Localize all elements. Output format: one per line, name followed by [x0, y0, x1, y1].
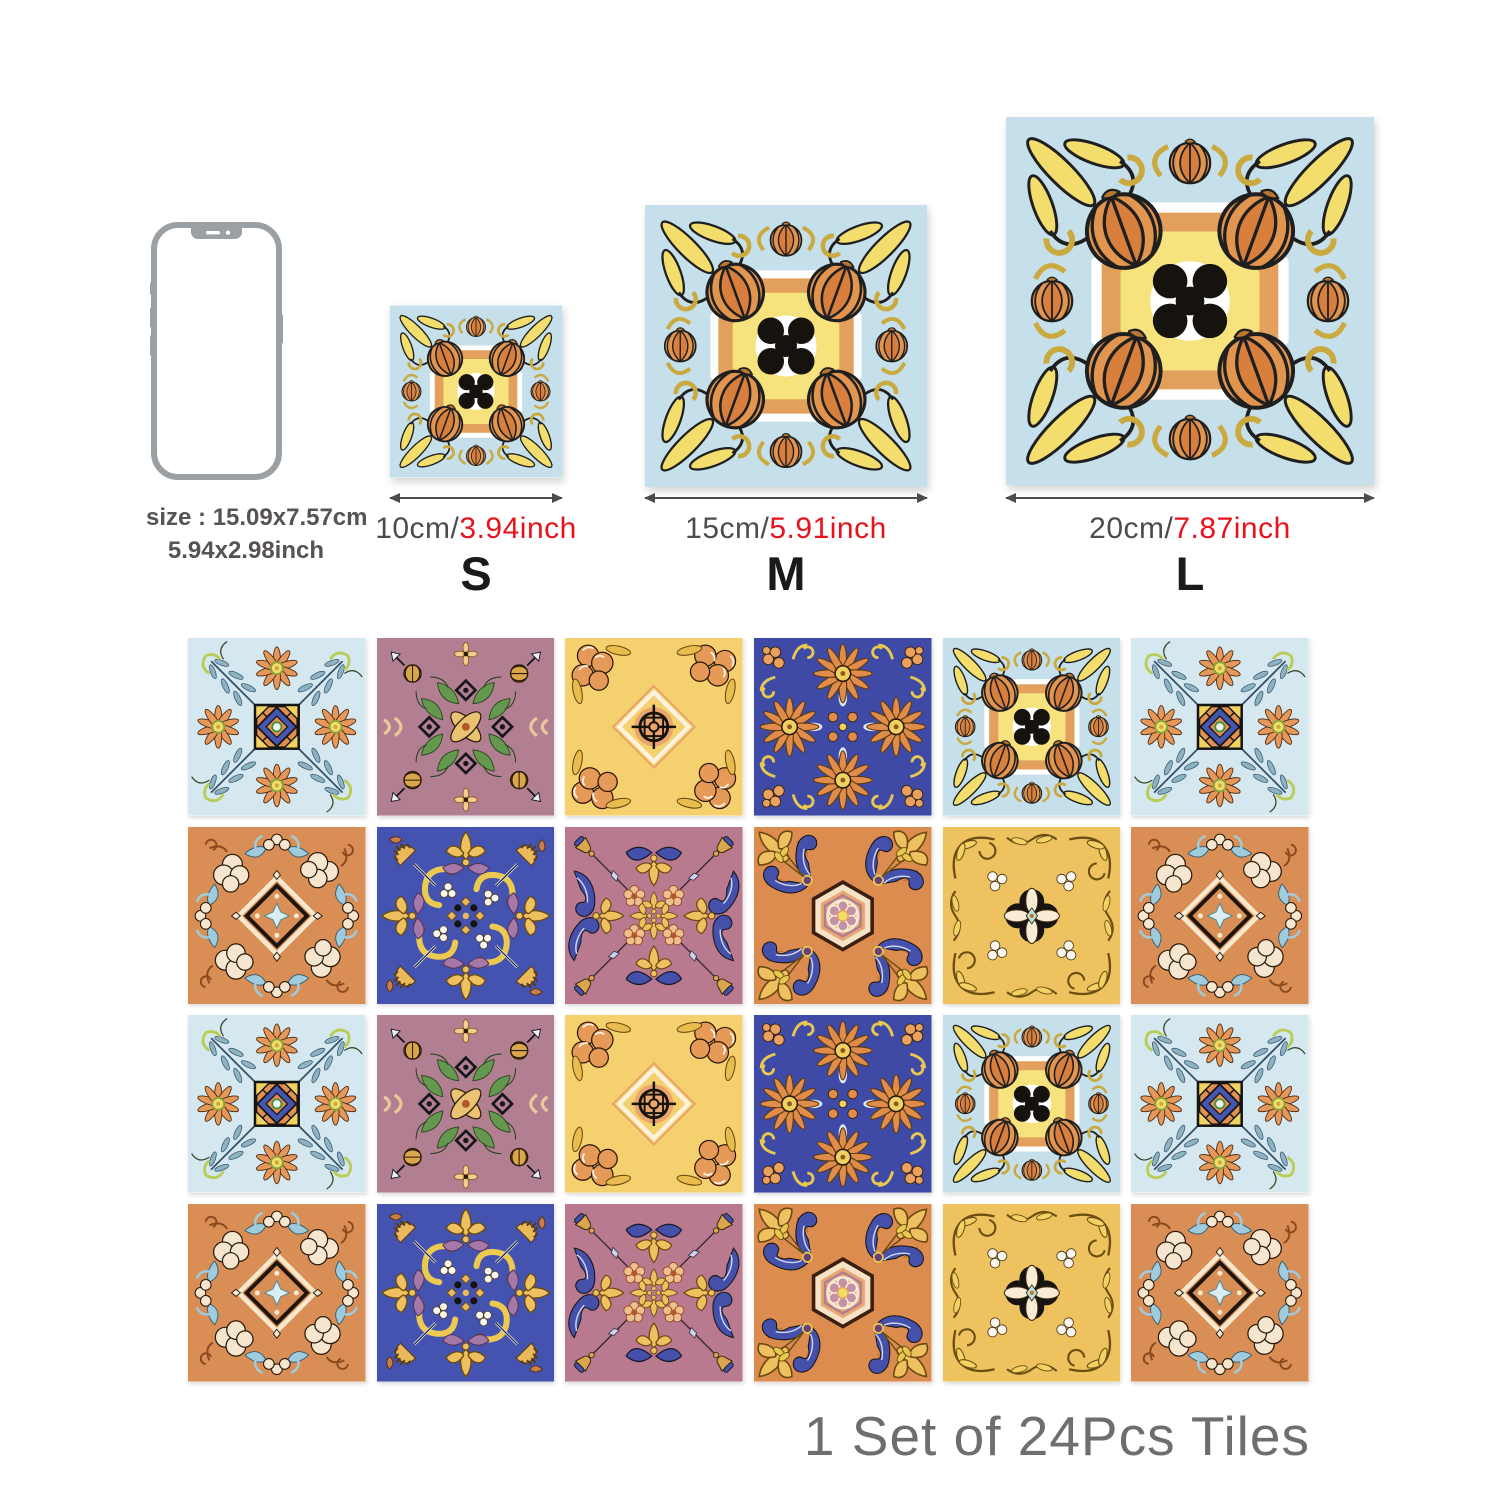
tile-set-grid: [188, 638, 1309, 1382]
tile-light-blue-daisy-square: [188, 638, 366, 816]
tile-art: [943, 638, 1121, 816]
tile-mauve-blue-paisley: [565, 1204, 743, 1382]
tile-art: [754, 1204, 932, 1382]
tile-terracotta-cream-diamond: [1131, 1204, 1309, 1382]
tile-art: [943, 1204, 1121, 1382]
tile-terracotta-hexagon-rosette: [754, 827, 932, 1005]
dimension-label-medium: 15cm/5.91inch: [645, 512, 927, 546]
tile-gold-peony-compass: [565, 638, 743, 816]
tile-art: [754, 638, 932, 816]
tile-art: [754, 1015, 932, 1193]
tile-mauve-gold-knot: [377, 1015, 555, 1193]
tile-mauve-blue-paisley: [565, 827, 743, 1005]
tile-light-blue-pumpkin-medallion: [943, 1015, 1121, 1193]
tile-art: [1131, 1204, 1309, 1382]
tile-terracotta-cream-diamond: [188, 1204, 366, 1382]
tile-art: [565, 1204, 743, 1382]
dimension-cm: 10cm/: [375, 512, 459, 546]
dimension-cm: 15cm/: [685, 512, 769, 546]
phone-size-label-cm: size : 15.09x7.57cm: [146, 504, 324, 532]
tile-gold-quatrefoil-vine: [943, 827, 1121, 1005]
dimension-inch: 7.87inch: [1173, 512, 1290, 546]
width-arrow-medium: [645, 497, 927, 499]
set-count-caption: 1 Set of 24Pcs Tiles: [804, 1404, 1310, 1468]
tile-light-blue-daisy-square: [188, 1015, 366, 1193]
tile-gold-peony-compass: [565, 1015, 743, 1193]
tile-art: [377, 1204, 555, 1382]
tile-light-blue-pumpkin-medallion: [943, 638, 1121, 816]
tile-art: [188, 638, 366, 816]
product-image: size : 15.09x7.57cm 5.94x2.98inch 10cm/3…: [0, 0, 1500, 1500]
tile-art: [943, 1015, 1121, 1193]
display-tile-small: [390, 305, 562, 478]
phone-outline-graphic: [150, 222, 283, 480]
tile-art: [565, 638, 743, 816]
tile-art: [377, 638, 555, 816]
tile-art: [645, 205, 927, 487]
tile-mauve-gold-knot: [377, 638, 555, 816]
tile-art: [377, 827, 555, 1005]
tile-art: [377, 1015, 555, 1193]
tile-art: [390, 305, 562, 478]
tile-royal-blue-sunflower: [754, 1015, 932, 1193]
tile-light-blue-daisy-square: [1131, 1015, 1309, 1193]
width-arrow-large: [1006, 497, 1374, 499]
tile-royal-blue-gold-scroll: [377, 827, 555, 1005]
tile-terracotta-cream-diamond: [1131, 827, 1309, 1005]
tile-art: [565, 1015, 743, 1193]
tile-art: [1131, 1015, 1309, 1193]
display-tile-large: [1006, 117, 1374, 485]
dimension-label-small: 10cm/3.94inch: [390, 512, 562, 546]
width-arrow-small: [390, 497, 562, 499]
display-tile-medium: [645, 205, 927, 487]
tile-art: [943, 827, 1121, 1005]
tile-art: [754, 827, 932, 1005]
size-letter-s: S: [390, 546, 562, 601]
tile-art: [1131, 827, 1309, 1005]
tile-art: [1006, 117, 1374, 485]
tile-art: [1131, 638, 1309, 816]
tile-terracotta-hexagon-rosette: [754, 1204, 932, 1382]
tile-light-blue-daisy-square: [1131, 638, 1309, 816]
tile-art: [188, 827, 366, 1005]
phone-size-label-inch: 5.94x2.98inch: [146, 537, 324, 565]
tile-art: [188, 1204, 366, 1382]
tile-gold-quatrefoil-vine: [943, 1204, 1121, 1382]
dimension-inch: 5.91inch: [769, 512, 886, 546]
dimension-cm: 20cm/: [1089, 512, 1173, 546]
tile-art: [565, 827, 743, 1005]
size-letter-m: M: [645, 546, 927, 601]
dimension-label-large: 20cm/7.87inch: [1006, 512, 1374, 546]
tile-terracotta-cream-diamond: [188, 827, 366, 1005]
tile-royal-blue-sunflower: [754, 638, 932, 816]
dimension-inch: 3.94inch: [459, 512, 576, 546]
size-letter-l: L: [1006, 546, 1374, 601]
tile-art: [188, 1015, 366, 1193]
phone-icon: [150, 222, 283, 480]
tile-royal-blue-gold-scroll: [377, 1204, 555, 1382]
